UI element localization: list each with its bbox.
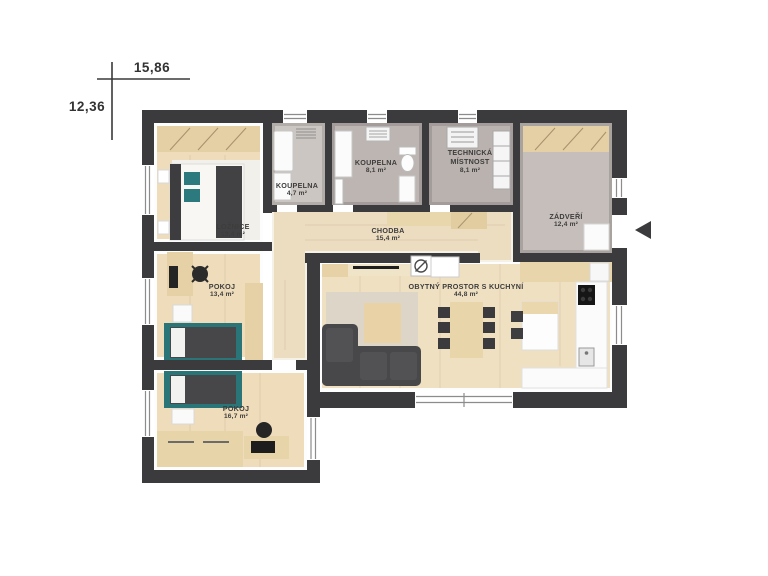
window-icon: [142, 278, 154, 325]
bar-stool-icon: [511, 311, 523, 322]
door-leaf-icon: [335, 179, 343, 204]
dimension-height-label: 12,36: [64, 99, 110, 114]
platform-bed-icon: [157, 431, 243, 467]
shower-icon: [274, 131, 293, 171]
wall-bottom-left-wing: [142, 470, 320, 483]
window-icon: [283, 110, 307, 123]
floor-plan-page: 15,86 12,36 LOŽNICE 13,4 m² KOUPELNA 4,7…: [0, 0, 768, 576]
double-bed-icon: [158, 160, 260, 240]
tv-icon: [353, 266, 399, 269]
terrace-door-icon: [415, 392, 513, 408]
shower-column-icon: [335, 131, 352, 177]
cooktop-icon: [578, 285, 595, 305]
window-icon: [142, 165, 154, 215]
window-icon: [458, 110, 477, 123]
floor-plan-canvas: [0, 0, 768, 576]
coffee-table-icon: [364, 303, 401, 343]
wardrobe-icon: [322, 264, 348, 277]
single-bed-icon: [164, 371, 242, 408]
window-icon: [367, 110, 387, 123]
window-icon: [307, 417, 320, 460]
fireplace-icon: [411, 256, 459, 277]
entry-closet-icon: [584, 224, 609, 250]
monitor-icon: [169, 266, 178, 288]
shelving-icon: [493, 131, 510, 189]
entry-door-opening: [612, 215, 627, 248]
kitchen-counter-bottom-icon: [522, 368, 607, 388]
window-icon: [612, 178, 627, 198]
bedroom-wardrobe-icon: [157, 126, 260, 152]
single-bed-icon: [164, 323, 242, 362]
nightstand-icon: [173, 305, 192, 322]
fridge-icon: [590, 263, 609, 281]
bathroom-cabinet-icon: [399, 176, 415, 202]
washbasin-icon: [274, 173, 291, 200]
wardrobe-icon: [245, 283, 263, 360]
office-chair-icon: [256, 422, 272, 438]
sink-icon: [579, 348, 594, 366]
dresser-icon: [172, 409, 194, 424]
tv-sideboard-icon: [348, 264, 412, 276]
desk-lamp-icon: [251, 441, 275, 453]
dimension-width-label: 15,86: [126, 60, 178, 75]
window-icon: [142, 390, 154, 437]
entrance-arrow-icon: [635, 221, 651, 239]
window-icon: [612, 305, 627, 345]
bar-stool-icon: [511, 328, 523, 339]
toilet-icon: [401, 155, 414, 172]
